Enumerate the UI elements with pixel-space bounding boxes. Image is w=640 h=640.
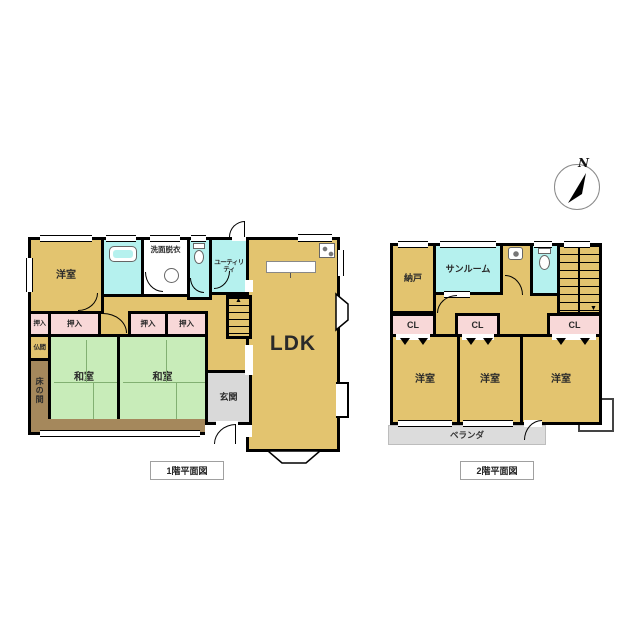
folding-door-icon xyxy=(466,338,476,345)
compass xyxy=(554,164,600,210)
window xyxy=(106,235,136,242)
compass-north-label: N xyxy=(578,156,589,170)
room-label-yoshitsu-2f: 洋室 xyxy=(480,374,500,386)
kitchen-counter xyxy=(266,261,316,273)
room-label-tokonoma: 床の間 xyxy=(35,377,44,404)
doorway-gap-utility xyxy=(245,280,253,292)
window xyxy=(564,241,590,248)
doorway-gap-ldk xyxy=(245,345,253,375)
room-genkan: 玄関 xyxy=(205,370,252,425)
bathtub-icon xyxy=(109,246,137,262)
floorplan-canvas: N LDK 洋室 洗面脱衣 ユーティリティ ▲ 押入 押入 押入 押入 仏間 床… xyxy=(0,0,640,640)
window xyxy=(191,235,206,242)
room-nando: 納戸 xyxy=(390,243,436,314)
window xyxy=(463,420,513,427)
window xyxy=(40,235,92,242)
folding-door-icon xyxy=(580,338,590,345)
sink-icon-2f xyxy=(508,247,523,260)
room-yoshitsu-2f-c: 洋室 xyxy=(520,334,602,425)
toilet-bowl-icon-1f xyxy=(194,250,204,264)
room-label-nando: 納戸 xyxy=(404,273,422,283)
bay-window-right-2 xyxy=(336,382,349,418)
room-label-ldk: LDK xyxy=(270,332,316,356)
window xyxy=(337,250,344,276)
toilet-tank-icon-1f xyxy=(193,243,205,249)
bay-window-right xyxy=(335,288,351,336)
window xyxy=(398,241,428,248)
room-label-yoshitsu-1f: 洋室 xyxy=(56,270,76,282)
bay-window-bottom xyxy=(258,450,330,465)
stove-icon xyxy=(319,243,335,258)
folding-door-icon xyxy=(556,338,566,345)
folding-door-icon xyxy=(483,338,493,345)
sink-icon-1f xyxy=(164,268,179,283)
closet-label-cl: CL xyxy=(472,320,484,330)
folding-door-icon xyxy=(400,338,410,345)
room-yoshitsu-2f-b: 洋室 xyxy=(457,334,523,425)
floor1-caption: 1階平面図 xyxy=(150,461,224,480)
back-door-arc xyxy=(229,221,245,237)
window-engawa xyxy=(40,430,200,437)
window xyxy=(26,258,33,292)
room-label-yoshitsu-2f: 洋室 xyxy=(551,374,571,386)
window xyxy=(534,241,552,248)
room-yoshitsu-2f-a: 洋室 xyxy=(390,334,460,425)
floor2-caption: 2階平面図 xyxy=(460,461,534,480)
closet-label: 押入 xyxy=(141,320,156,329)
stairs-up-arrow-icon: ▲ xyxy=(235,297,242,304)
room-washitsu-1: 和室 xyxy=(48,334,120,422)
closet-label: 押入 xyxy=(67,320,82,329)
toilet-tank-icon-2f xyxy=(538,248,551,254)
window xyxy=(398,420,452,427)
window xyxy=(298,234,332,242)
floor1-caption-text: 1階平面図 xyxy=(166,464,207,477)
stairs-down-arrow-icon: ▼ xyxy=(590,305,597,312)
folding-door-icon xyxy=(418,338,428,345)
veranda-label: ベランダ xyxy=(450,429,484,441)
closet-label: 押入 xyxy=(34,320,46,327)
counter-leg xyxy=(290,273,291,278)
room-label-butsuma: 仏間 xyxy=(34,344,46,351)
room-label-genkan: 玄関 xyxy=(219,392,237,402)
room-label-yoshitsu-2f: 洋室 xyxy=(415,374,435,386)
room-label-senmen: 洗面脱衣 xyxy=(151,246,181,255)
room-washitsu-2: 和室 xyxy=(117,334,208,422)
closet-label: 押入 xyxy=(179,320,194,329)
window xyxy=(150,235,180,242)
room-sunroom: サンルーム xyxy=(433,243,503,295)
toilet-bowl-icon-2f xyxy=(539,255,550,270)
room-label-sunroom: サンルーム xyxy=(446,264,491,274)
window xyxy=(440,241,496,248)
veranda: ベランダ xyxy=(388,425,546,445)
room-senmen: 洗面脱衣 xyxy=(141,237,190,297)
floor2-caption-text: 2階平面図 xyxy=(476,464,517,477)
compass-needle-icon xyxy=(555,165,601,211)
closet-label-cl: CL xyxy=(407,320,419,330)
closet-label-cl: CL xyxy=(569,320,581,330)
